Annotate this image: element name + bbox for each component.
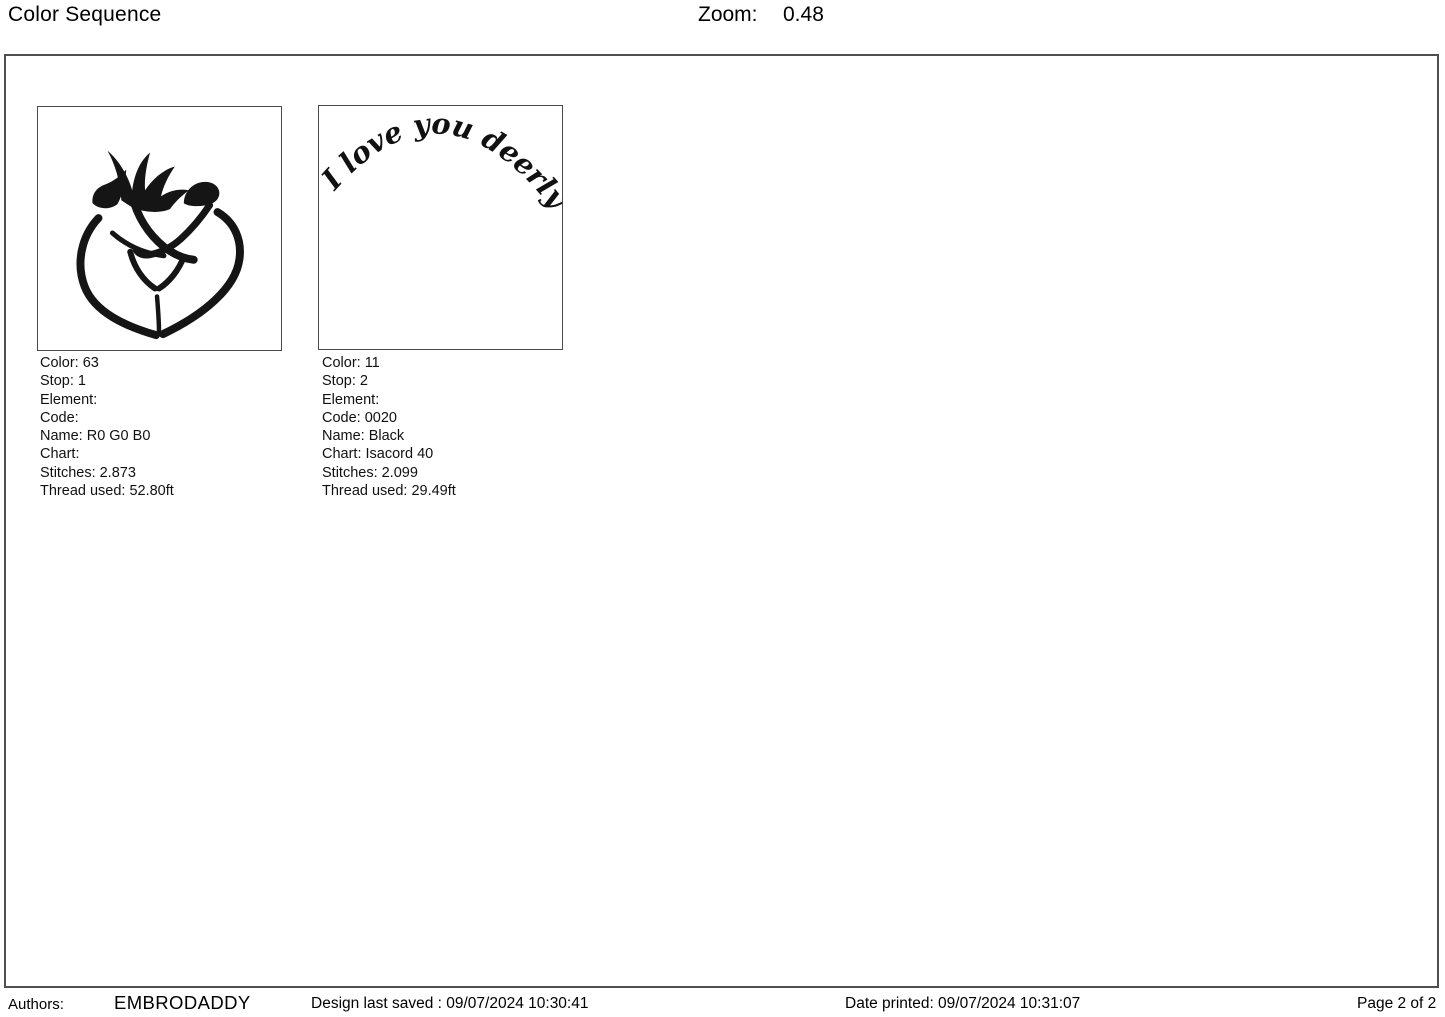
field-stop: Stop:2	[322, 372, 602, 390]
field-stitches: Stitches:2.873	[40, 464, 320, 482]
design-last-saved: Design last saved : 09/07/2024 10:30:41	[311, 995, 588, 1013]
field-color: Color:63	[40, 354, 320, 372]
arc-text-design: I love you deerly	[319, 106, 562, 349]
buck-ear-shape	[92, 169, 126, 208]
field-element: Element:	[322, 391, 602, 409]
date-printed: Date printed: 09/07/2024 10:31:07	[845, 995, 1080, 1013]
field-thread-used: Thread used:52.80ft	[40, 482, 320, 500]
buck-doe-heart-design	[38, 107, 281, 350]
field-name: Name:R0 G0 B0	[40, 427, 320, 445]
field-stitches: Stitches:2.099	[322, 464, 602, 482]
field-chart: Chart:Isacord 40	[322, 445, 602, 463]
inner-v-right-stroke	[159, 257, 184, 289]
field-color: Color:11	[322, 354, 602, 372]
authors-label: Authors:	[8, 996, 64, 1013]
color-info-block-2: Color:11 Stop:2 Element: Code:0020 Name:…	[322, 354, 602, 500]
zoom-label: Zoom:	[698, 3, 758, 27]
page-number: Page 2 of 2	[1357, 995, 1436, 1013]
zoom-value: 0.48	[783, 3, 824, 27]
design-thumbnail-1	[37, 106, 282, 351]
field-code: Code:0020	[322, 409, 602, 427]
field-chart: Chart:	[40, 445, 320, 463]
author-name: EMBRODADDY	[114, 992, 251, 1014]
color-info-block-1: Color:63 Stop:1 Element: Code: Name:R0 G…	[40, 354, 320, 500]
field-stop: Stop:1	[40, 372, 320, 390]
arc-text: I love you deerly	[319, 106, 562, 216]
field-name: Name:Black	[322, 427, 602, 445]
field-thread-used: Thread used:29.49ft	[322, 482, 602, 500]
design-thumbnail-2: I love you deerly	[318, 105, 563, 350]
field-code: Code:	[40, 409, 320, 427]
page-title: Color Sequence	[8, 3, 161, 27]
field-element: Element:	[40, 391, 320, 409]
doe-ear-shape	[184, 182, 220, 206]
inner-tail-stroke	[157, 296, 159, 332]
color-sequence-report-page: { "header": { "title": "Color Sequence",…	[0, 0, 1445, 1017]
